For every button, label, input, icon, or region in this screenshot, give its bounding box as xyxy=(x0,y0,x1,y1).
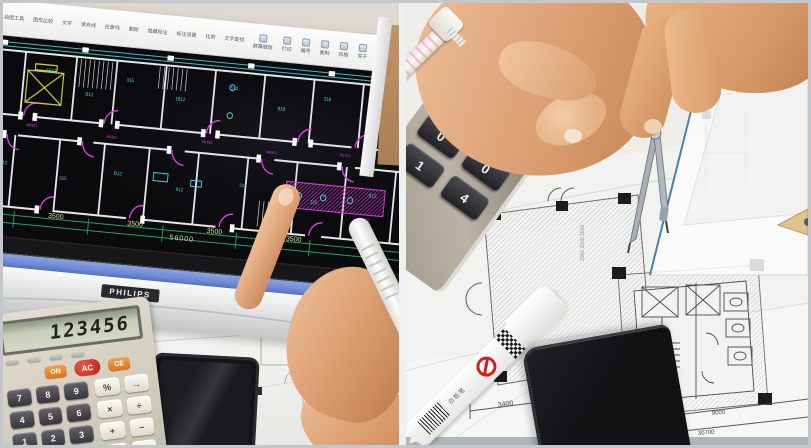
cad-menu-item[interactable]: 文字 xyxy=(62,19,73,27)
calculator-key: 6 xyxy=(66,403,92,423)
cad-toolbar-button[interactable]: 屏幕缩放 xyxy=(252,33,273,51)
calculator-key: → xyxy=(123,373,149,393)
marker-logo xyxy=(472,352,500,380)
cad-menu-item[interactable]: 隐藏标注 xyxy=(147,27,168,36)
cad-menu-item[interactable]: 标注设置 xyxy=(176,30,197,39)
calculator-key: 9 xyxy=(63,381,89,401)
calculator-key: % xyxy=(94,377,120,397)
cad-menu-item[interactable]: 文字查找 xyxy=(224,35,245,44)
cad-toolbar-button[interactable]: 关于 xyxy=(357,43,369,60)
tool-icon xyxy=(359,43,368,52)
calculator-key: × xyxy=(97,399,123,419)
calculator-key: 8 xyxy=(35,384,61,404)
phone-screen xyxy=(156,360,253,445)
calculator-key: 3 xyxy=(69,425,95,445)
ce-key: CE xyxy=(107,356,130,372)
calculator-key: 5 xyxy=(38,406,64,426)
cad-menu-item[interactable]: 图形比较 xyxy=(33,16,54,25)
cad-toolbar-button[interactable]: 复制 xyxy=(319,39,331,56)
calculator-key: + xyxy=(99,421,125,441)
cad-menu-item[interactable]: 比例 xyxy=(205,33,216,41)
calculator-key: · xyxy=(102,443,128,445)
fingernail xyxy=(644,119,662,134)
on-key: ON xyxy=(44,364,67,380)
cad-menu-item[interactable]: 绘图工具 xyxy=(4,14,25,23)
calculator-keypad: 789456123000. %→×÷+−·= xyxy=(7,373,158,445)
cad-toolbar-group: 屏幕缩放 打印 编号 复制 风格 xyxy=(252,33,387,62)
dimension-value: 3500 xyxy=(127,220,143,228)
right-photo-blueprint-work: 2000 2000 2000 3400 xyxy=(406,3,808,445)
calculator-key: = xyxy=(131,439,157,445)
calculator-key: 7 xyxy=(7,388,33,408)
number-keys: 789456123000. xyxy=(7,381,98,445)
calculator-key: − xyxy=(129,417,155,437)
calculator-key: 4 xyxy=(9,410,35,430)
tool-icon xyxy=(302,38,311,47)
calculator-key: 2 xyxy=(40,428,66,445)
cad-toolbar-button[interactable]: 风格 xyxy=(338,41,350,58)
tool-icon xyxy=(321,40,330,49)
photo-collage: 图层绘图工具图形比较文字填充线任意线删除隐藏标注标注设置比例文字查找 屏幕缩放 … xyxy=(0,0,811,448)
dimension-value: 3500 xyxy=(286,236,302,244)
tool-icon xyxy=(283,36,292,45)
tool-icon xyxy=(340,41,349,50)
cad-menu-item[interactable]: 任意线 xyxy=(104,23,120,31)
ac-key: AC xyxy=(73,358,101,377)
desk-calculator: 123456 ON AC CE 789456123000. %→×÷+−·= xyxy=(3,296,169,445)
cad-toolbar-button[interactable]: 打印 xyxy=(281,36,293,53)
svg-text:9000: 9000 xyxy=(712,410,726,417)
calculator-key: 1 xyxy=(12,432,38,445)
dimension-value: 3500 xyxy=(206,228,222,236)
marker-label: 白板笔 xyxy=(446,385,467,406)
left-photo-cad-workstation: 图层绘图工具图形比较文字填充线任意线删除隐藏标注标注设置比例文字查找 屏幕缩放 … xyxy=(3,3,399,445)
operator-keys: %→×÷+−·= xyxy=(94,373,158,445)
cad-menu-item[interactable]: 删除 xyxy=(128,26,139,34)
tool-icon xyxy=(259,34,268,43)
smartphone xyxy=(148,352,260,445)
fingernail xyxy=(564,129,582,143)
cad-toolbar-button[interactable]: 编号 xyxy=(300,38,312,55)
photo-divider xyxy=(399,3,406,445)
dimension-value: 3500 xyxy=(48,213,64,221)
cad-menu-item[interactable]: 填充线 xyxy=(81,21,97,29)
calculator-key: ÷ xyxy=(126,395,152,415)
